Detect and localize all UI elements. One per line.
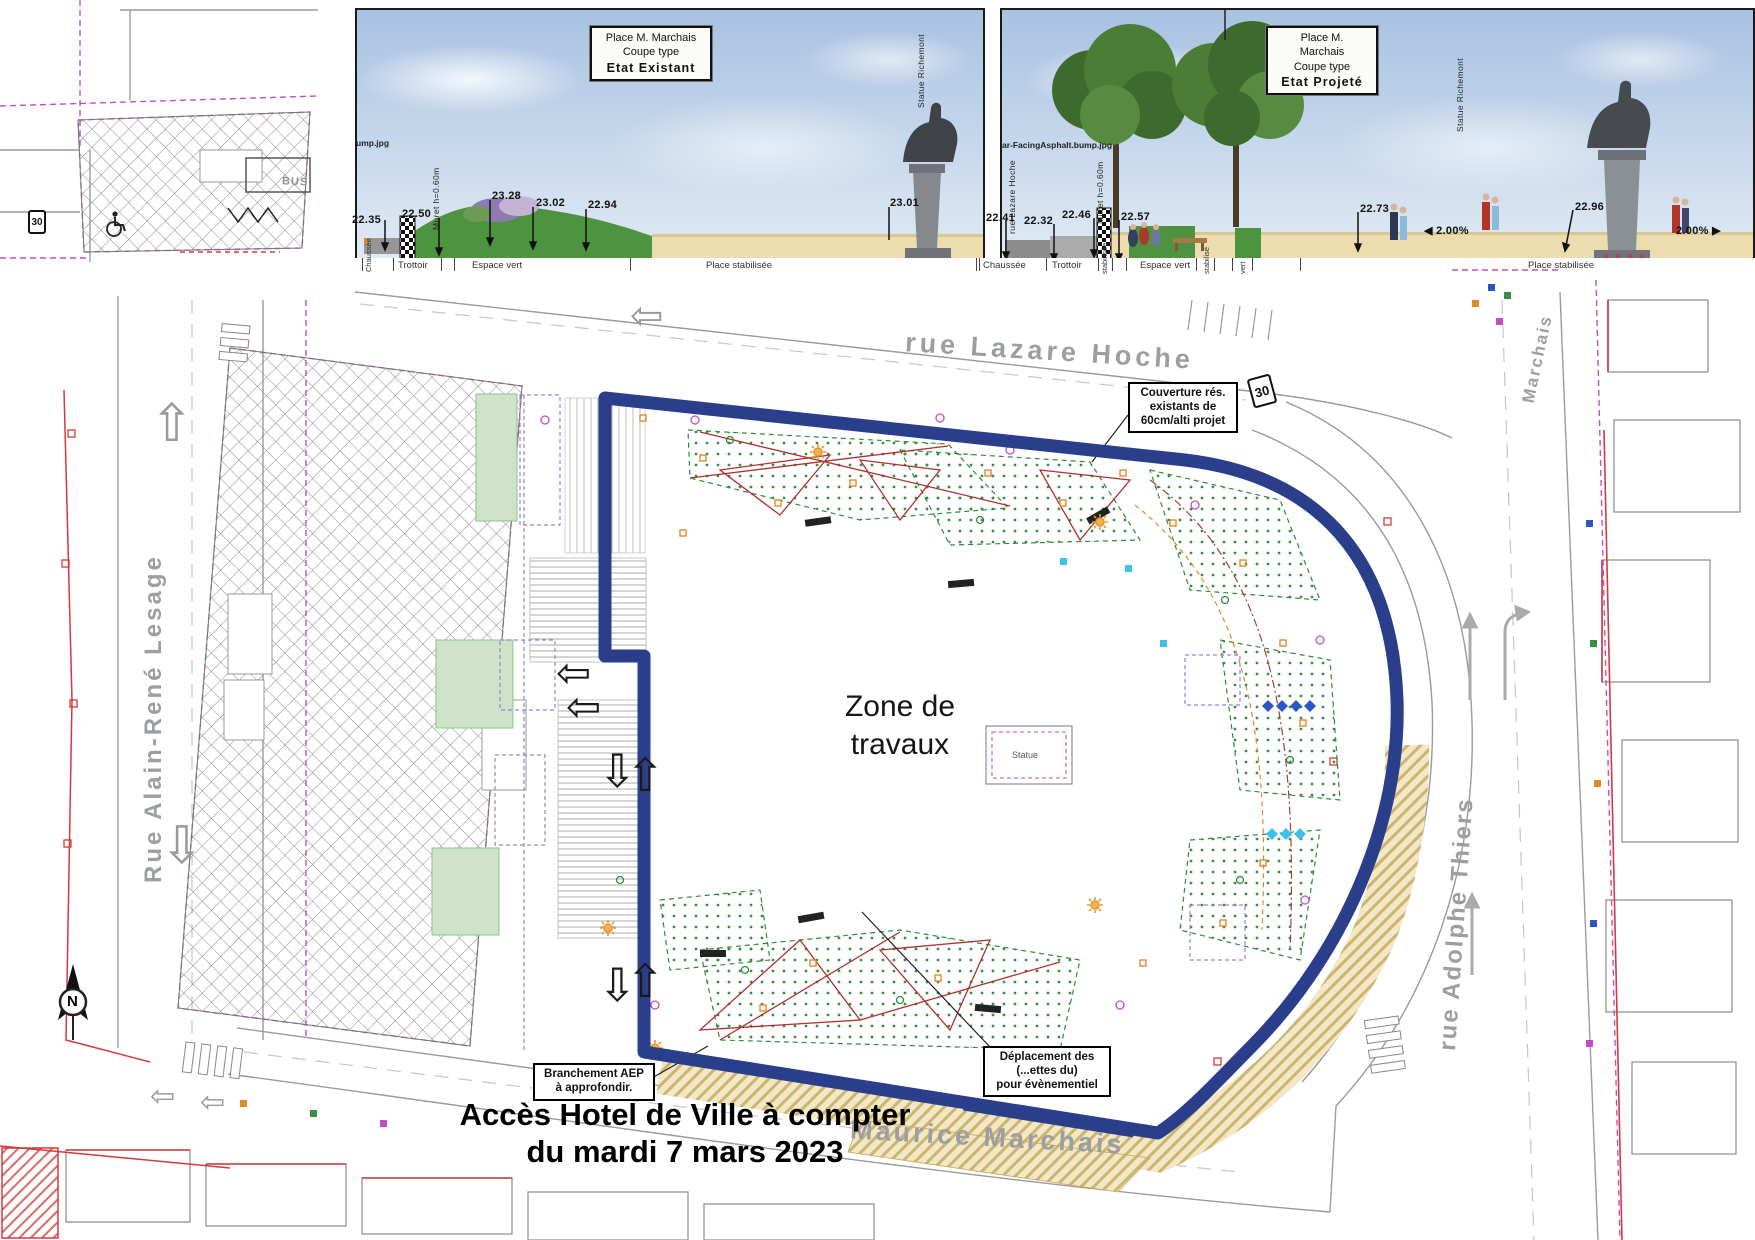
speed-sign-30-left: 30 xyxy=(28,210,46,234)
arrow-left-icon: ⇦ xyxy=(566,686,601,728)
ground-proj-stabilisee: stabilisée xyxy=(1100,230,1109,274)
arrow-up-icon: ⇧ xyxy=(150,398,194,450)
muret-label-existing: Muret h=0.60m xyxy=(431,148,441,230)
ground-proj-espace-vert: Espace vert xyxy=(1140,260,1190,271)
arrow-left-icon: ⇦ xyxy=(200,1088,225,1118)
ground-existing-chaussee: Chaussée xyxy=(364,244,373,272)
arrow-left-icon: ⇦ xyxy=(150,1082,175,1112)
access-notice: Accès Hotel de Ville à compter du mardi … xyxy=(430,1096,940,1170)
ground-proj-chaussee: Chaussée xyxy=(983,260,1026,271)
ground-proj-trottoir: Trottoir xyxy=(1052,260,1082,271)
ground-existing-trottoir: Trottoir xyxy=(398,260,428,271)
arrow-up-icon: ⇧ xyxy=(626,958,665,1004)
statue-label-projected: Statue Richemont xyxy=(1455,54,1465,132)
slope-arrow-right-icon: ▶ xyxy=(1712,225,1721,237)
title-projected-coupe: Coupe type xyxy=(1277,60,1367,74)
elev-23-01: 23.01 xyxy=(890,197,919,209)
slope-label-1: ◀ 2.00% xyxy=(1424,224,1469,237)
title-projected-etat: Etat Projeté xyxy=(1277,74,1367,90)
plan-canvas: { "sections": { "existing": { "title": [… xyxy=(0,0,1755,1240)
title-existing-place: Place M. Marchais xyxy=(601,31,701,45)
title-projected-place: Place M. Marchais xyxy=(1277,31,1367,60)
ground-existing-espace-vert: Espace vert xyxy=(472,260,522,271)
texture-note-existing: ump.jpg xyxy=(356,138,389,148)
note-couverture: Couverture rés. existants de 60cm/alti p… xyxy=(1128,382,1238,433)
slope-label-2: 2.00% ▶ xyxy=(1676,224,1721,237)
elev-22-50: 22.50 xyxy=(402,208,431,220)
work-zone-boundary-overlay xyxy=(958,1088,1138,1144)
title-projected: Place M. Marchais Coupe type Etat Projet… xyxy=(1266,26,1378,95)
arrow-left-icon: ⇦ xyxy=(630,296,664,336)
title-existing-coupe: Coupe type xyxy=(601,45,701,59)
ground-proj-stabilise: stabilisé xyxy=(1202,232,1211,274)
elev-22-73: 22.73 xyxy=(1360,203,1389,215)
title-existing: Place M. Marchais Coupe type Etat Exista… xyxy=(590,26,712,81)
ground-proj-place-stabilisee: Place stabilisée xyxy=(1528,260,1594,271)
ground-proj-vert: vert xyxy=(1238,240,1247,274)
elev-23-02: 23.02 xyxy=(536,197,565,209)
elev-22-32: 22.32 xyxy=(1024,215,1053,227)
texture-note-projected: ar-FacingAsphalt.bump.jpg xyxy=(1002,140,1112,150)
arrow-down-icon: ⇩ xyxy=(160,820,204,872)
elev-23-28: 23.28 xyxy=(492,190,521,202)
bus-label: BUS xyxy=(282,175,309,188)
title-existing-etat: Etat Existant xyxy=(601,60,701,76)
note-branchement: Branchement AEP à approfondir. xyxy=(533,1063,655,1101)
arrow-up-icon: ⇧ xyxy=(626,752,665,798)
elev-22-94: 22.94 xyxy=(588,199,617,211)
north-label: N xyxy=(67,993,78,1010)
elev-22-41: 22.41 xyxy=(986,212,1015,224)
muret-label-projected: Muret h=0.60m xyxy=(1095,160,1105,224)
elev-22-96: 22.96 xyxy=(1575,201,1604,213)
slope-arrow-left-icon: ◀ xyxy=(1424,225,1433,237)
statue-label-existing: Statue Richemont xyxy=(916,28,926,108)
zone-travaux-label: Zone de travaux xyxy=(790,688,1010,763)
elev-22-46: 22.46 xyxy=(1062,209,1091,221)
elev-22-35: 22.35 xyxy=(352,214,381,226)
elev-22-57: 22.57 xyxy=(1121,211,1150,223)
ground-existing-place-stabilisee: Place stabilisée xyxy=(706,260,772,271)
statue-box-label: Statue xyxy=(1012,750,1038,760)
